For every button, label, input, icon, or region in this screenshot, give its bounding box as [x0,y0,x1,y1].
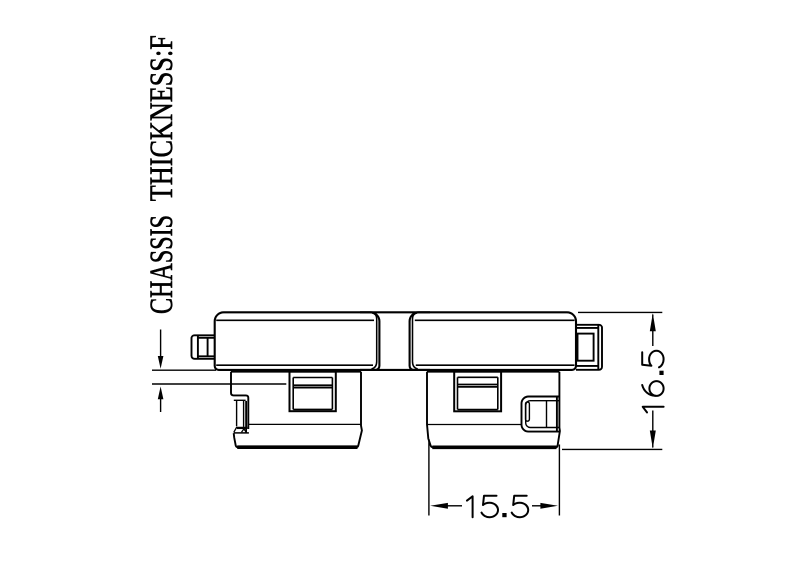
svg-text:THICKNESS:F: THICKNESS:F [144,35,180,201]
svg-text:CHASSIS: CHASSIS [144,215,180,314]
